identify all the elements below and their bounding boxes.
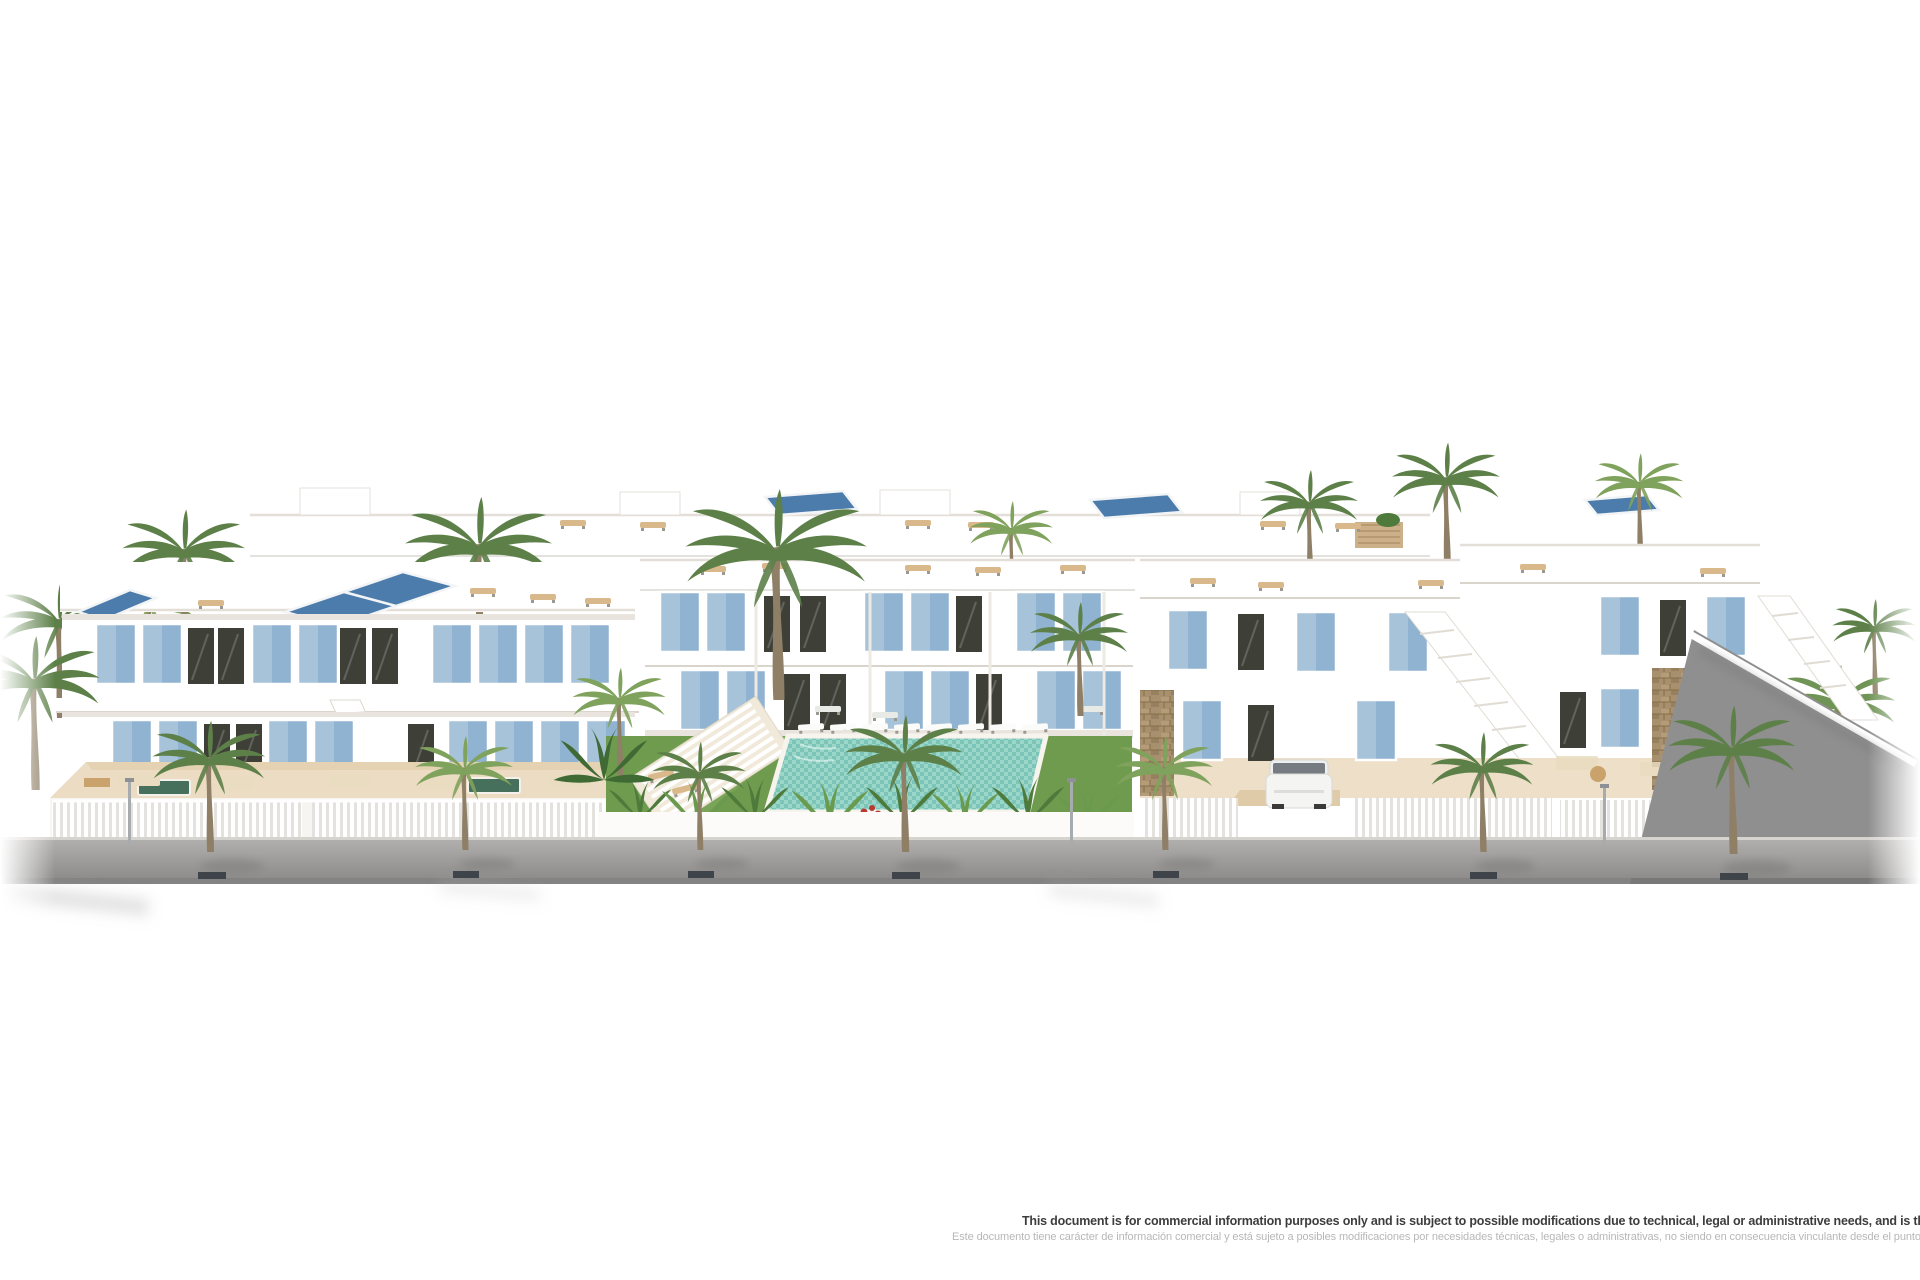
edge-fade [0,460,55,940]
render-page: This document is for commercial informat… [0,0,1920,1280]
edge-fade [1868,460,1920,940]
road [0,840,1920,878]
window-shutter [660,592,1102,652]
white-car [1266,760,1332,809]
disclaimer-line-es: Este documento tiene carácter de informa… [952,1231,1920,1243]
disclaimer-line-en: This document is for commercial informat… [1022,1214,1920,1228]
white-fence [1352,798,1552,842]
center-apartment-block [640,560,1135,738]
outdoor-table [1590,766,1606,782]
outdoor-table [84,778,110,787]
white-fence [1142,798,1238,842]
road-edge [0,878,1920,884]
development-render [0,0,1920,1280]
curb [0,837,1920,840]
balcony-slab [645,654,1133,666]
left-apartment-block [50,562,640,844]
